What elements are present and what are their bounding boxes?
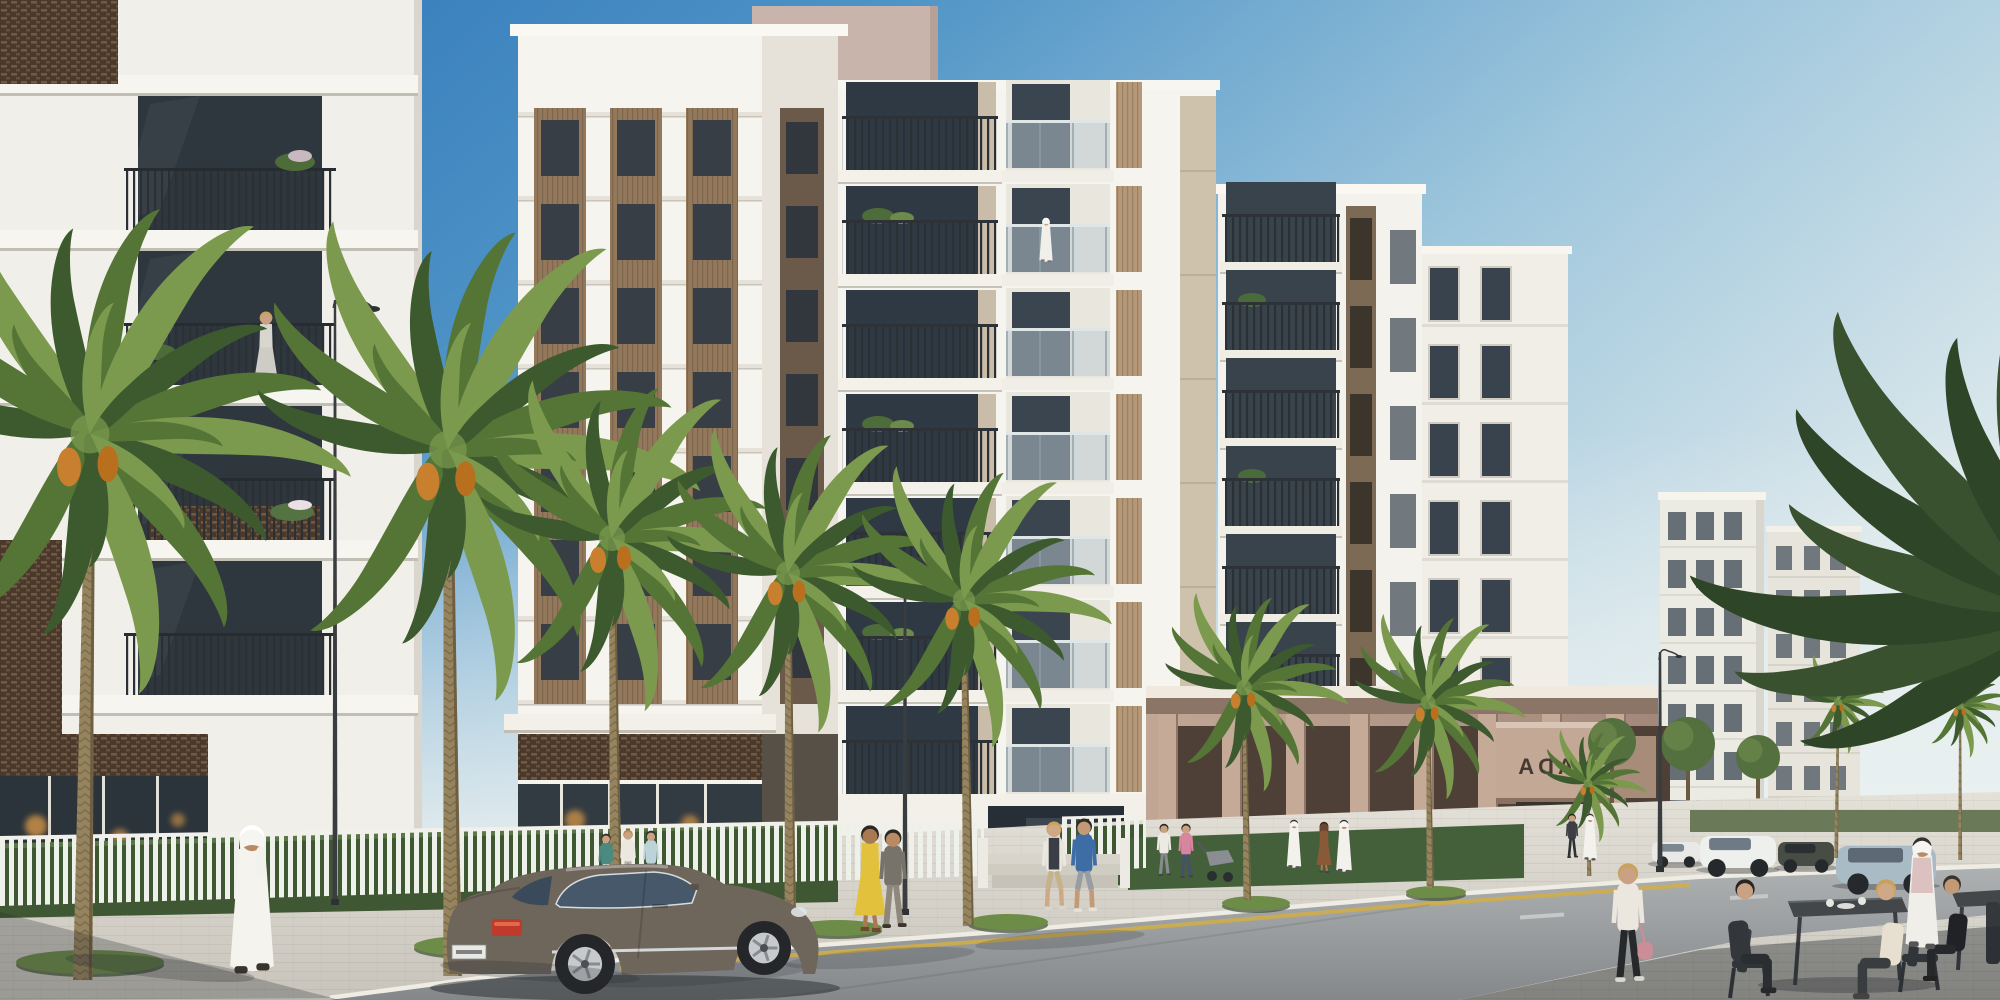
architectural-rendering: NADA [0, 0, 2000, 1000]
mid-right-building [1404, 246, 1572, 724]
